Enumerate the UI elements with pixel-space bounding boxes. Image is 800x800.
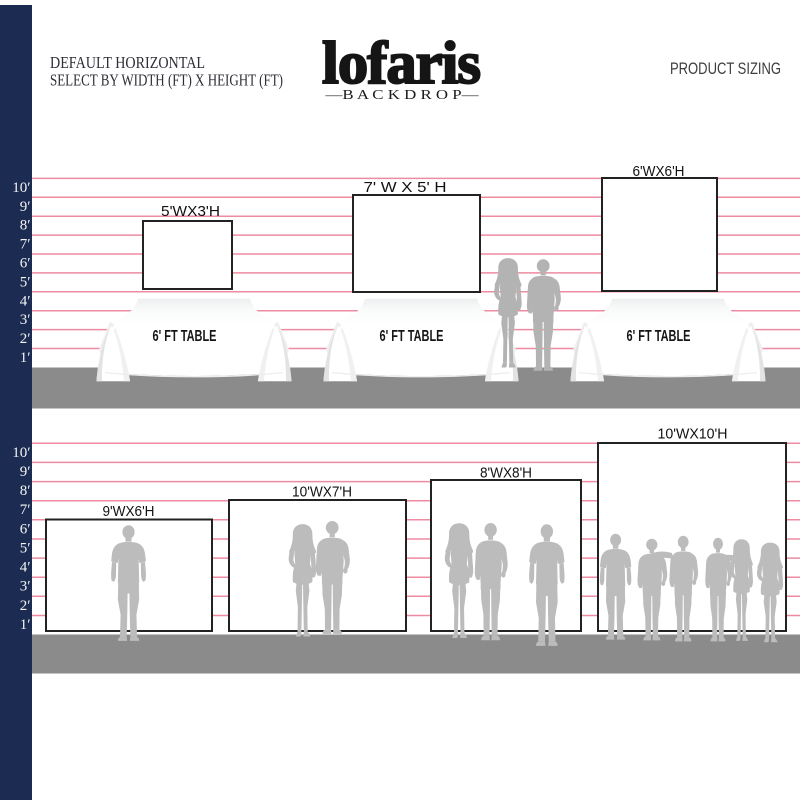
svg-text:8′: 8′ bbox=[20, 218, 31, 234]
svg-text:5′: 5′ bbox=[20, 274, 31, 290]
svg-text:SELECT BY WIDTH (FT) X HEIGHT: SELECT BY WIDTH (FT) X HEIGHT (FT) bbox=[50, 71, 283, 90]
svg-text:10′: 10′ bbox=[12, 445, 30, 461]
svg-text:PRODUCT SIZING: PRODUCT SIZING bbox=[670, 59, 781, 78]
svg-text:9'WX6'H: 9'WX6'H bbox=[103, 504, 155, 520]
svg-text:4′: 4′ bbox=[20, 560, 31, 576]
svg-text:5′: 5′ bbox=[20, 541, 31, 557]
svg-text:7′: 7′ bbox=[20, 237, 31, 253]
svg-text:1′: 1′ bbox=[20, 617, 31, 633]
svg-text:1′: 1′ bbox=[20, 350, 31, 366]
svg-text:4′: 4′ bbox=[20, 293, 31, 309]
svg-text:10'WX7'H: 10'WX7'H bbox=[292, 485, 352, 501]
svg-text:10'WX10'H: 10'WX10'H bbox=[658, 427, 728, 443]
svg-text:—B A C K D R O P—: —B A C K D R O P— bbox=[324, 87, 479, 102]
svg-text:9′: 9′ bbox=[20, 199, 31, 215]
svg-text:5'WX3'H: 5'WX3'H bbox=[161, 204, 220, 220]
svg-text:2′: 2′ bbox=[20, 598, 31, 614]
svg-text:9′: 9′ bbox=[20, 464, 31, 480]
svg-text:8′: 8′ bbox=[20, 483, 31, 499]
svg-text:2′: 2′ bbox=[20, 331, 31, 347]
svg-text:6′: 6′ bbox=[20, 521, 31, 537]
svg-text:10′: 10′ bbox=[12, 180, 30, 196]
svg-text:6′: 6′ bbox=[20, 256, 31, 272]
svg-text:7' W X 5' H: 7' W X 5' H bbox=[364, 180, 447, 196]
svg-text:3′: 3′ bbox=[20, 579, 31, 595]
svg-text:3′: 3′ bbox=[20, 312, 31, 328]
svg-text:DEFAULT HORIZONTAL: DEFAULT HORIZONTAL bbox=[50, 53, 205, 72]
svg-text:7′: 7′ bbox=[20, 502, 31, 518]
